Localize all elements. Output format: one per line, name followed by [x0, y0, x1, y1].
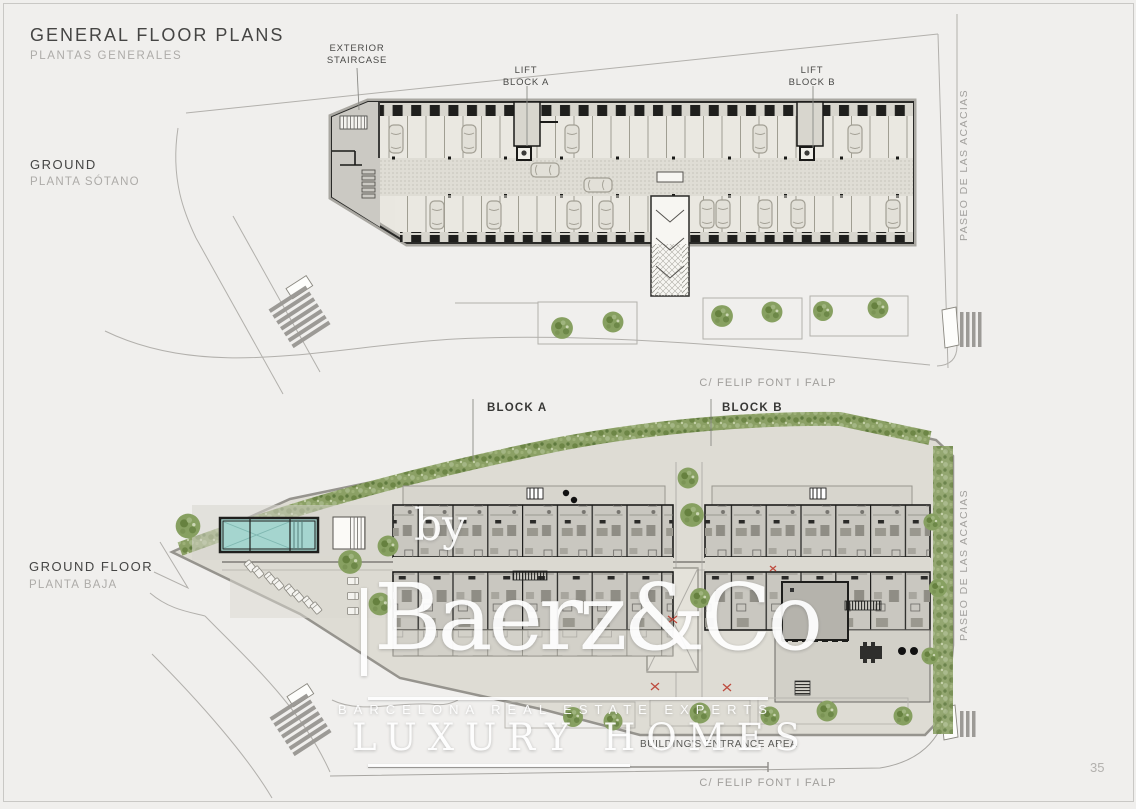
brochure-page: { "page": { "page_number": "35", "backgr…	[0, 0, 1136, 804]
plan-label-ground-floor-es: PLANTA BAJA	[29, 579, 117, 591]
exterior-staircase-label: EXTERIOR STAIRCASE	[306, 43, 408, 66]
lift-block-b-label: LIFT BLOCK B	[762, 65, 862, 88]
lift-block-a-label: LIFT BLOCK A	[476, 65, 576, 88]
street-felip-bottom: C/ FELIP FONT I FALP	[688, 777, 848, 789]
page-number: 35	[1090, 760, 1104, 775]
page-subtitle: PLANTAS GENERALES	[30, 50, 182, 62]
street-felip-top: C/ FELIP FONT I FALP	[688, 377, 848, 389]
plan-label-ground: GROUND	[30, 157, 97, 172]
labels-layer: GENERAL FLOOR PLANS PLANTAS GENERALES GR…	[0, 0, 1136, 804]
street-paseo-top: PASEO DE LAS ACACIAS	[958, 89, 970, 241]
buildings-entrance-label: BUILDING'S ENTRANCE AREA	[640, 739, 797, 750]
block-b-label: BLOCK B	[722, 402, 783, 414]
block-a-label: BLOCK A	[487, 402, 547, 414]
plan-label-ground-es: PLANTA SÓTANO	[30, 176, 140, 188]
plan-label-ground-floor: GROUND FLOOR	[29, 559, 153, 574]
street-paseo-bottom: PASEO DE LAS ACACIAS	[958, 489, 970, 641]
page-title: GENERAL FLOOR PLANS	[30, 25, 284, 46]
